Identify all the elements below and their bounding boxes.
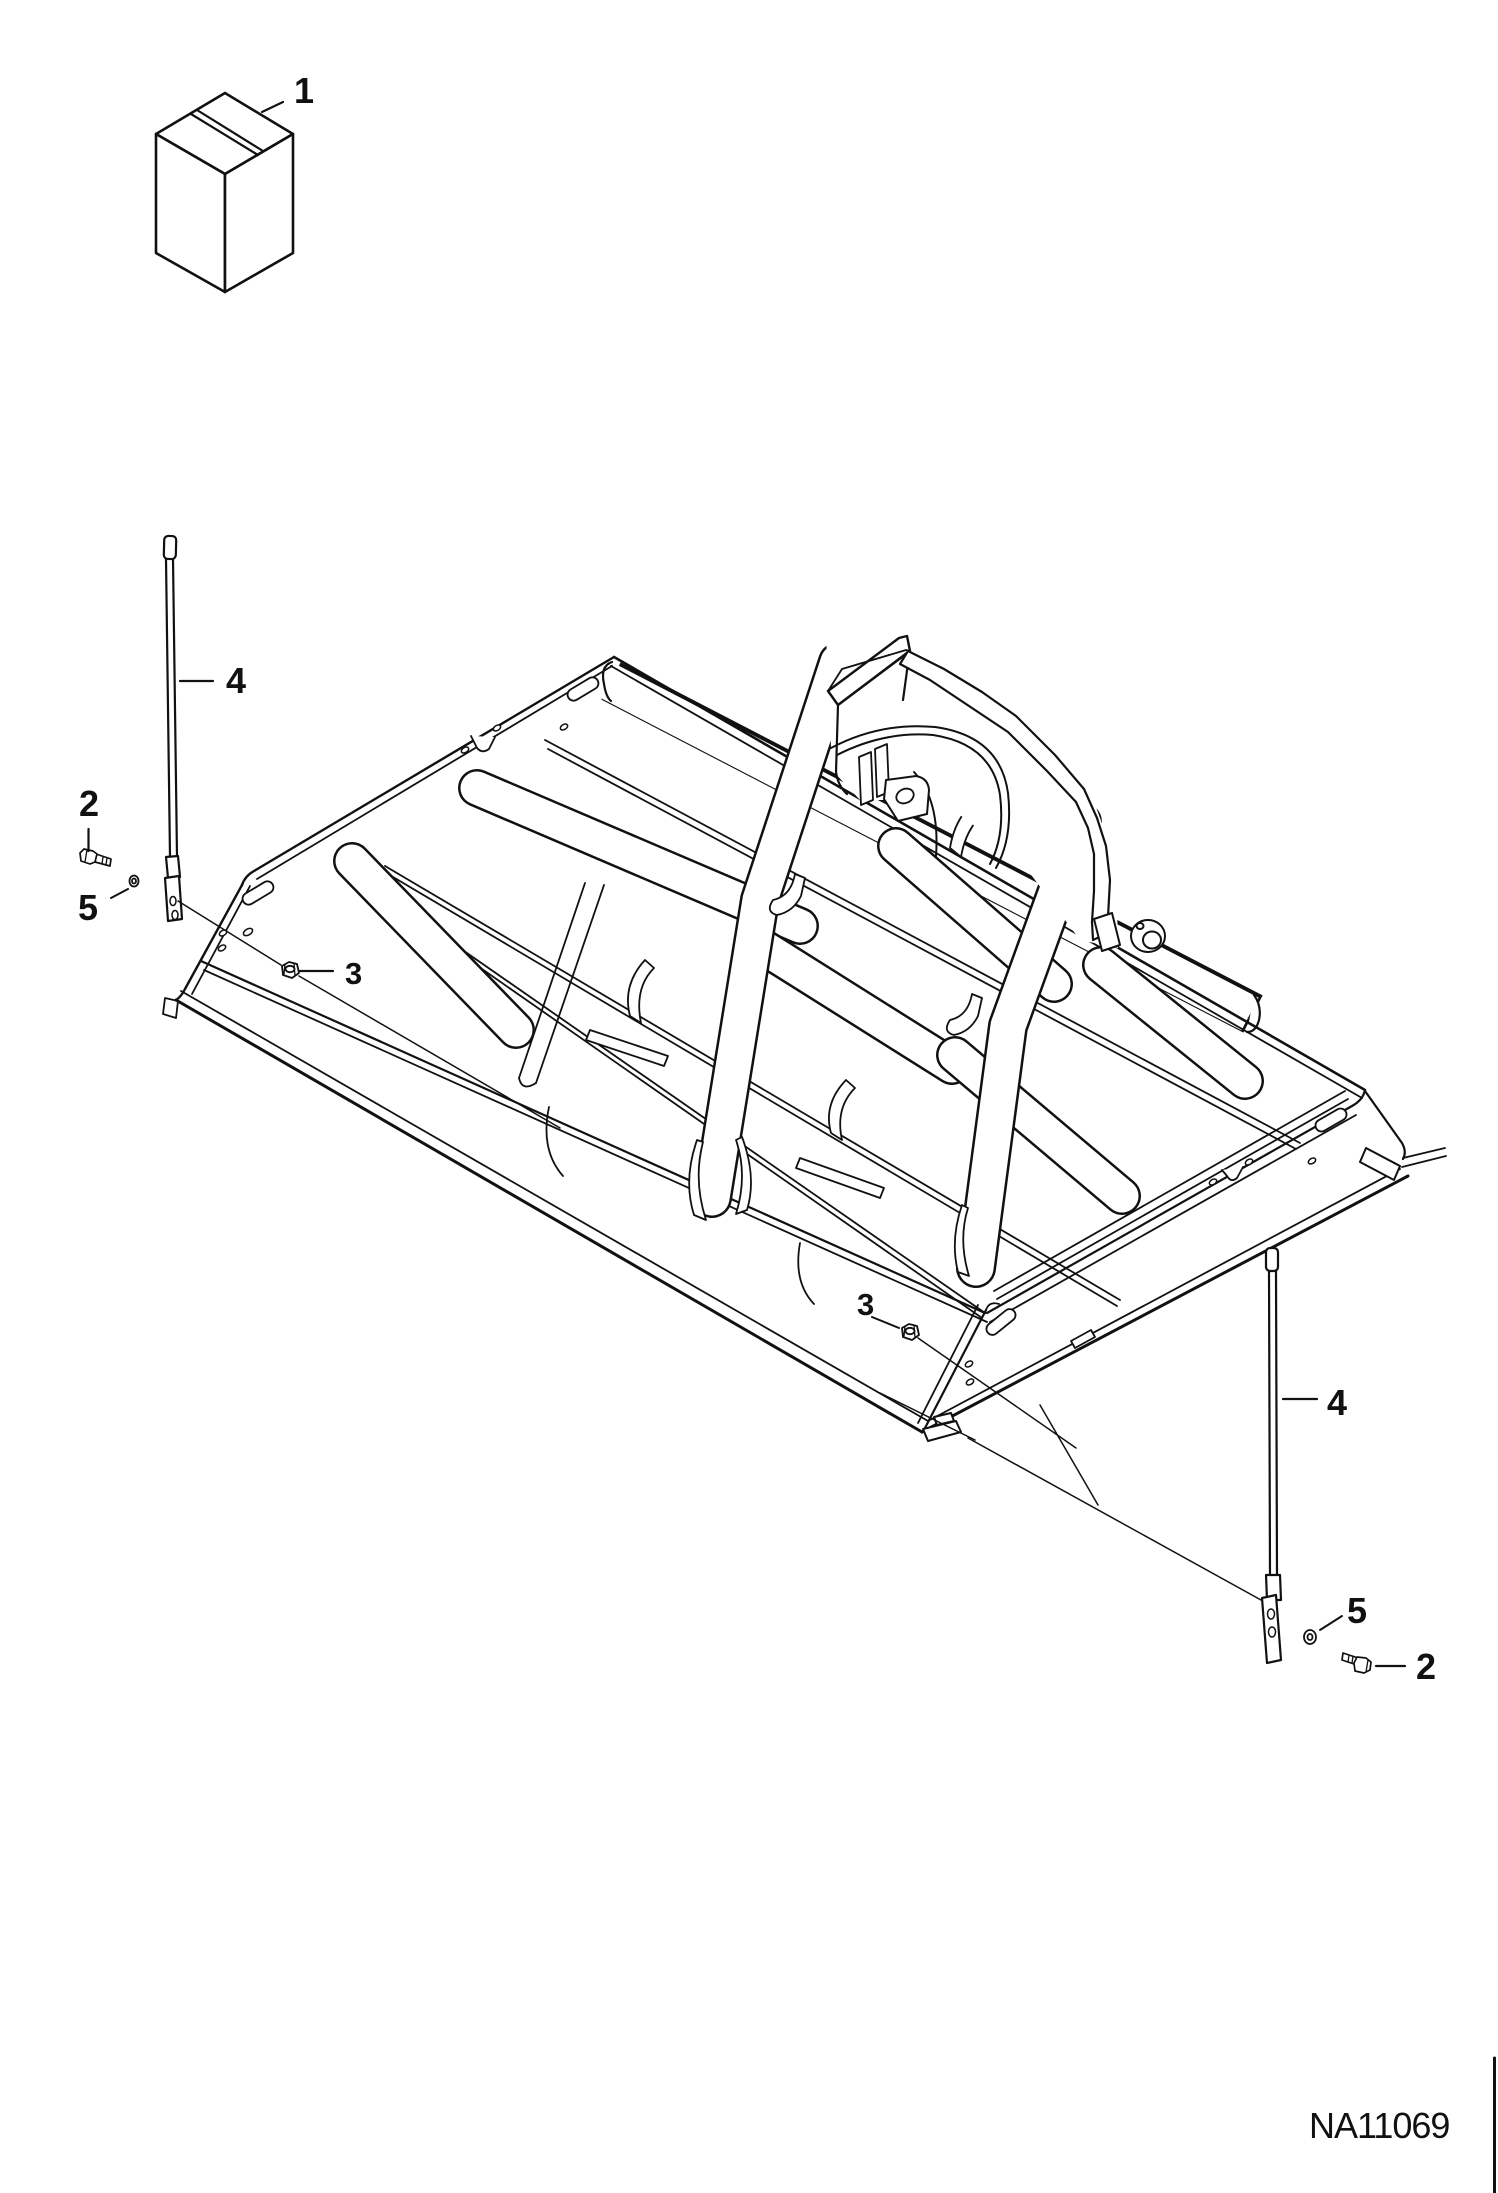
svg-text:1: 1 [294,70,314,111]
svg-text:2: 2 [79,783,99,824]
svg-text:2: 2 [1416,1646,1436,1687]
svg-text:5: 5 [1347,1590,1367,1631]
svg-text:4: 4 [1327,1382,1347,1423]
svg-text:3: 3 [857,1287,874,1322]
svg-text:4: 4 [226,660,246,701]
svg-text:3: 3 [345,956,362,991]
svg-text:NA11069: NA11069 [1309,2105,1449,2146]
svg-text:5: 5 [78,887,98,928]
